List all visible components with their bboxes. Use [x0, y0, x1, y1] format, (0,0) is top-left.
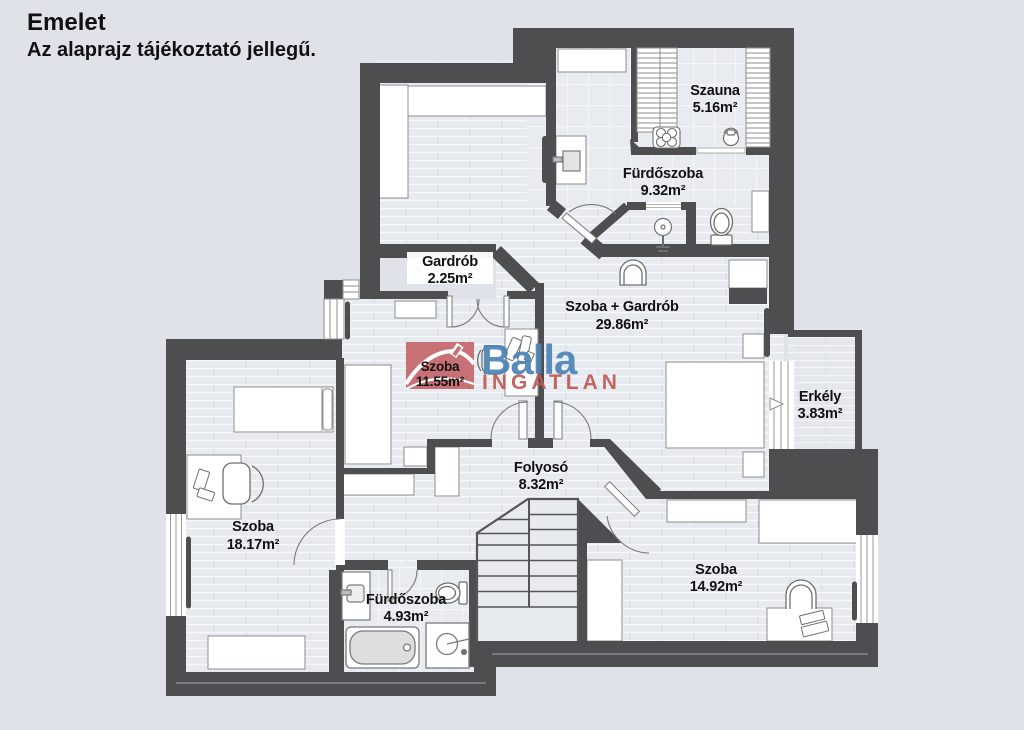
svg-text:Szoba: Szoba: [421, 359, 460, 374]
svg-text:Fürdőszoba: Fürdőszoba: [623, 166, 704, 182]
svg-text:18.17m²: 18.17m²: [227, 537, 280, 553]
svg-text:INGATLAN: INGATLAN: [482, 371, 621, 394]
svg-text:Folyosó: Folyosó: [514, 460, 569, 476]
svg-text:29.86m²: 29.86m²: [596, 317, 649, 333]
svg-text:Fürdőszoba: Fürdőszoba: [366, 592, 447, 608]
svg-text:Szoba + Gardrób: Szoba + Gardrób: [565, 299, 679, 315]
svg-text:Gardrób: Gardrób: [422, 254, 478, 270]
svg-text:Az alaprajz tájékoztató jelleg: Az alaprajz tájékoztató jellegű.: [27, 39, 316, 61]
svg-text:3.83m²: 3.83m²: [798, 406, 843, 422]
svg-text:Emelet: Emelet: [27, 9, 106, 36]
svg-text:Erkély: Erkély: [799, 389, 841, 405]
svg-text:Szoba: Szoba: [232, 519, 275, 535]
svg-text:2.25m²: 2.25m²: [428, 271, 473, 287]
svg-text:9.32m²: 9.32m²: [641, 183, 686, 199]
svg-text:14.92m²: 14.92m²: [690, 579, 743, 595]
svg-text:Szoba: Szoba: [695, 562, 738, 578]
svg-text:5.16m²: 5.16m²: [693, 100, 738, 116]
svg-text:8.32m²: 8.32m²: [519, 477, 564, 493]
svg-text:Szauna: Szauna: [690, 83, 741, 99]
svg-text:11.55m²: 11.55m²: [416, 374, 465, 389]
svg-text:4.93m²: 4.93m²: [384, 609, 429, 625]
